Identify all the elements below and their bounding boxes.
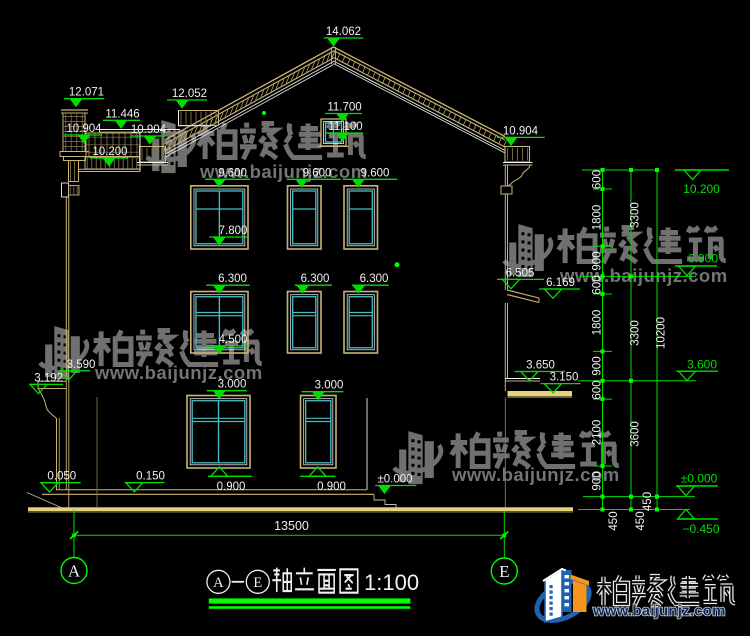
svg-text:10.904: 10.904 [503,125,539,137]
svg-text:3600: 3600 [630,421,642,447]
svg-text:3.650: 3.650 [526,360,555,372]
svg-text:0.050: 0.050 [47,471,76,483]
svg-text:3.000: 3.000 [218,379,247,391]
svg-text:450: 450 [642,492,654,511]
svg-text:900: 900 [592,471,604,490]
svg-text:12.071: 12.071 [69,87,104,99]
svg-text:3.590: 3.590 [67,359,96,371]
svg-text:1:100: 1:100 [364,570,419,595]
svg-text:14.062: 14.062 [326,26,361,38]
svg-text:10.200: 10.200 [683,182,720,196]
svg-text:6.505: 6.505 [506,267,535,279]
svg-text:0.900: 0.900 [317,481,346,493]
svg-text:−0.450: −0.450 [682,522,719,536]
svg-text:6.300: 6.300 [360,273,389,285]
svg-text:6.300: 6.300 [301,273,330,285]
svg-text:3.150: 3.150 [550,372,579,384]
svg-text:6.900: 6.900 [688,252,718,266]
svg-text:0.150: 0.150 [136,471,165,483]
svg-text:11.700: 11.700 [327,102,361,114]
svg-text:±0.000: ±0.000 [681,472,718,486]
svg-text:9.600: 9.600 [361,167,390,179]
svg-text:450: 450 [608,511,620,530]
svg-text:3.600: 3.600 [687,358,717,372]
svg-text:±0.000: ±0.000 [377,474,412,486]
svg-text:A: A [68,562,81,581]
svg-text:0.900: 0.900 [217,481,246,493]
svg-text:600: 600 [592,380,604,399]
svg-text:10200: 10200 [656,317,668,349]
svg-text:4.500: 4.500 [219,334,248,346]
svg-text:10.904: 10.904 [66,123,102,135]
svg-text:900: 900 [592,251,604,270]
svg-text:11.446: 11.446 [105,108,139,120]
svg-text:3300: 3300 [630,320,642,346]
svg-text:10.904: 10.904 [131,124,167,136]
svg-text:11.100: 11.100 [328,121,362,133]
svg-text:2100: 2100 [592,420,604,446]
svg-text:www.baijunjz.com: www.baijunjz.com [559,265,728,286]
svg-text:1800: 1800 [592,205,604,231]
svg-text:13500: 13500 [274,519,309,533]
svg-text:600: 600 [592,275,604,294]
svg-text:10.200: 10.200 [92,146,127,158]
svg-text:450: 450 [635,511,647,530]
svg-text:7.800: 7.800 [219,225,248,237]
svg-text:900: 900 [592,356,604,375]
svg-text:3.192: 3.192 [34,372,63,384]
svg-text:12.052: 12.052 [172,88,207,100]
svg-text:1800: 1800 [592,310,604,336]
svg-text:3.000: 3.000 [315,380,344,392]
svg-text:600: 600 [592,170,604,189]
svg-text:E: E [253,575,262,591]
svg-text:9.600: 9.600 [218,167,247,179]
svg-text:www.baijunjz.com: www.baijunjz.com [592,603,726,620]
svg-text:9.600: 9.600 [303,167,332,179]
svg-text:6.169: 6.169 [546,277,575,289]
svg-text:6.300: 6.300 [218,273,247,285]
svg-text:E: E [499,562,509,581]
svg-text:3300: 3300 [630,202,642,228]
svg-text:A: A [213,575,224,591]
